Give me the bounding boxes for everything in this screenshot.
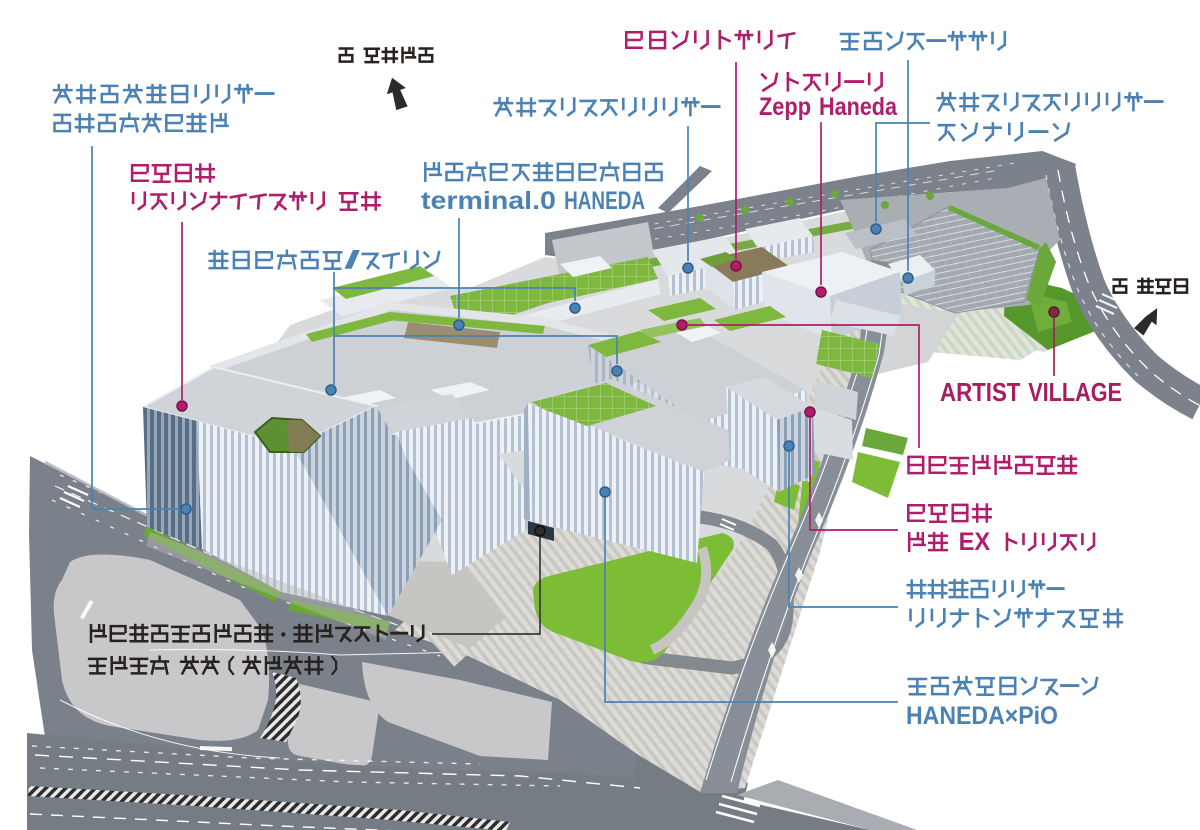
svg-text:terminal.0: terminal.0 bbox=[421, 187, 556, 215]
svg-text:VILLAGE: VILLAGE bbox=[1028, 377, 1122, 407]
svg-text:HANEDA×PiO: HANEDA×PiO bbox=[906, 702, 1058, 730]
svg-text:HANEDA: HANEDA bbox=[564, 187, 645, 215]
svg-text:Haneda: Haneda bbox=[819, 93, 898, 121]
svg-text:ARTIST: ARTIST bbox=[940, 377, 1020, 407]
svg-text:/: / bbox=[344, 246, 361, 274]
svg-text:EX: EX bbox=[959, 528, 991, 556]
svg-text:Zepp: Zepp bbox=[759, 93, 811, 121]
